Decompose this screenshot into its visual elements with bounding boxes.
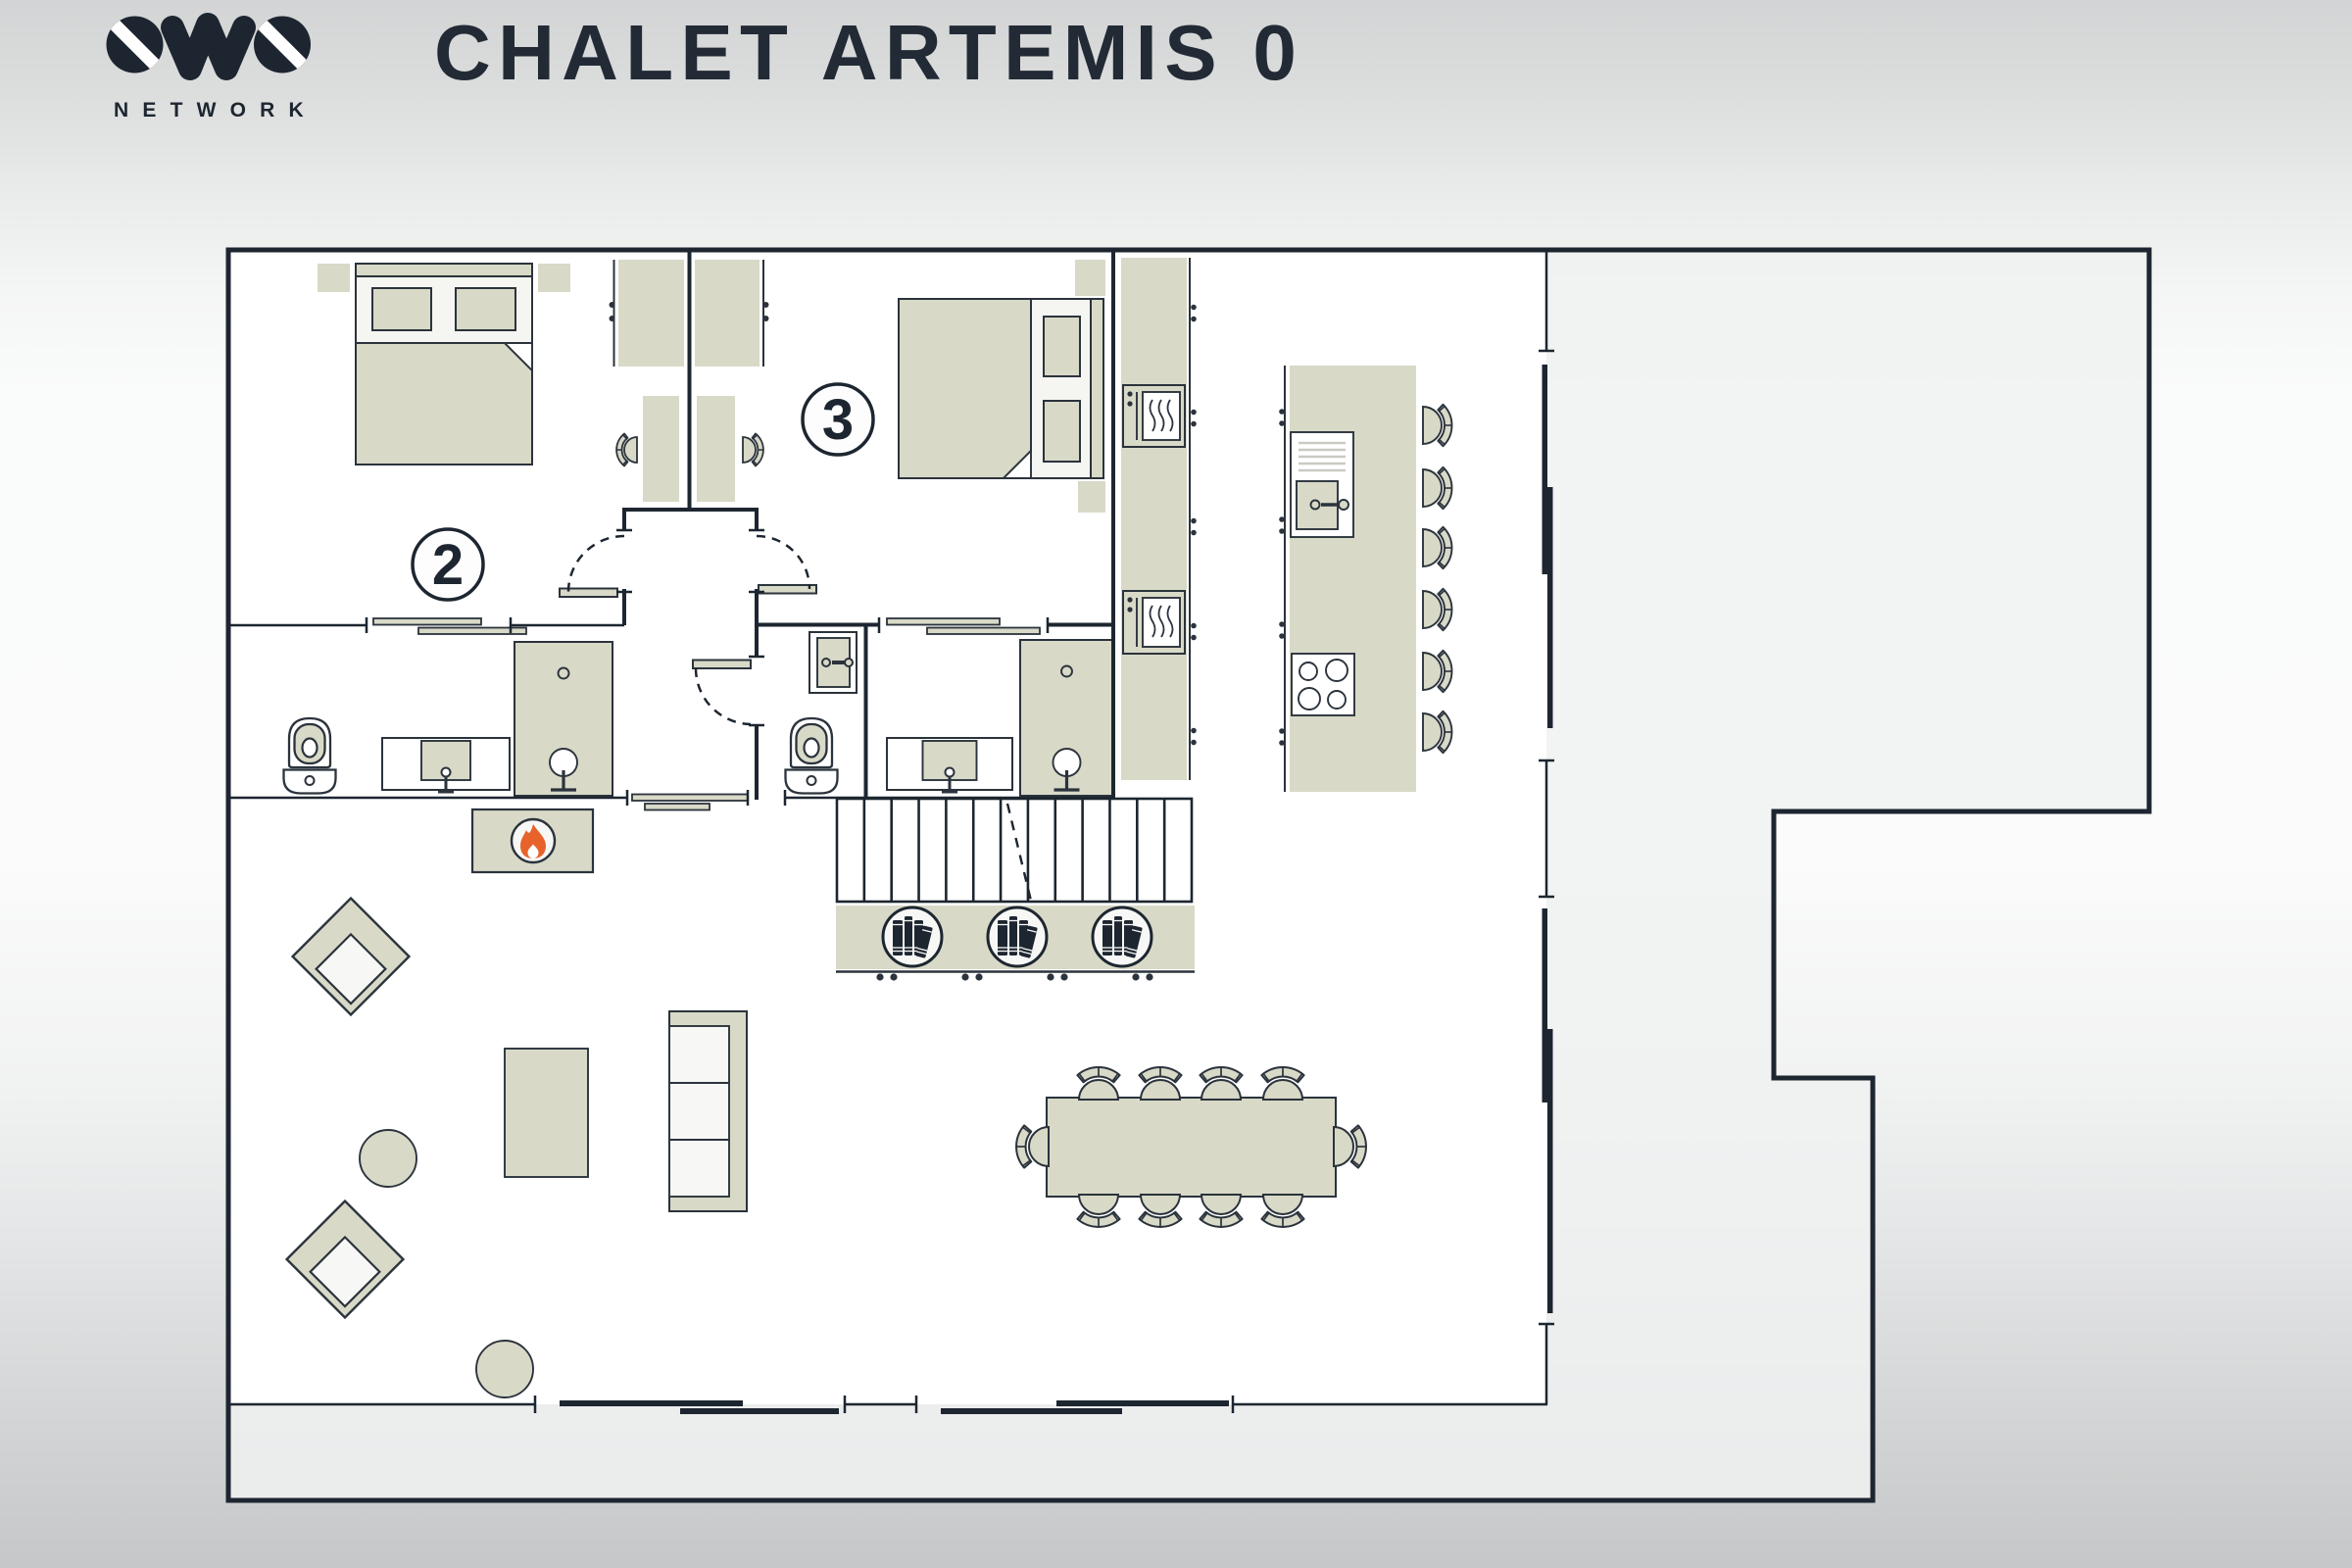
svg-text:2: 2	[432, 533, 464, 597]
svg-text:3: 3	[822, 388, 854, 452]
svg-text:CHALET ARTEMIS 0: CHALET ARTEMIS 0	[434, 9, 1303, 96]
svg-text:NETWORK: NETWORK	[114, 99, 318, 122]
